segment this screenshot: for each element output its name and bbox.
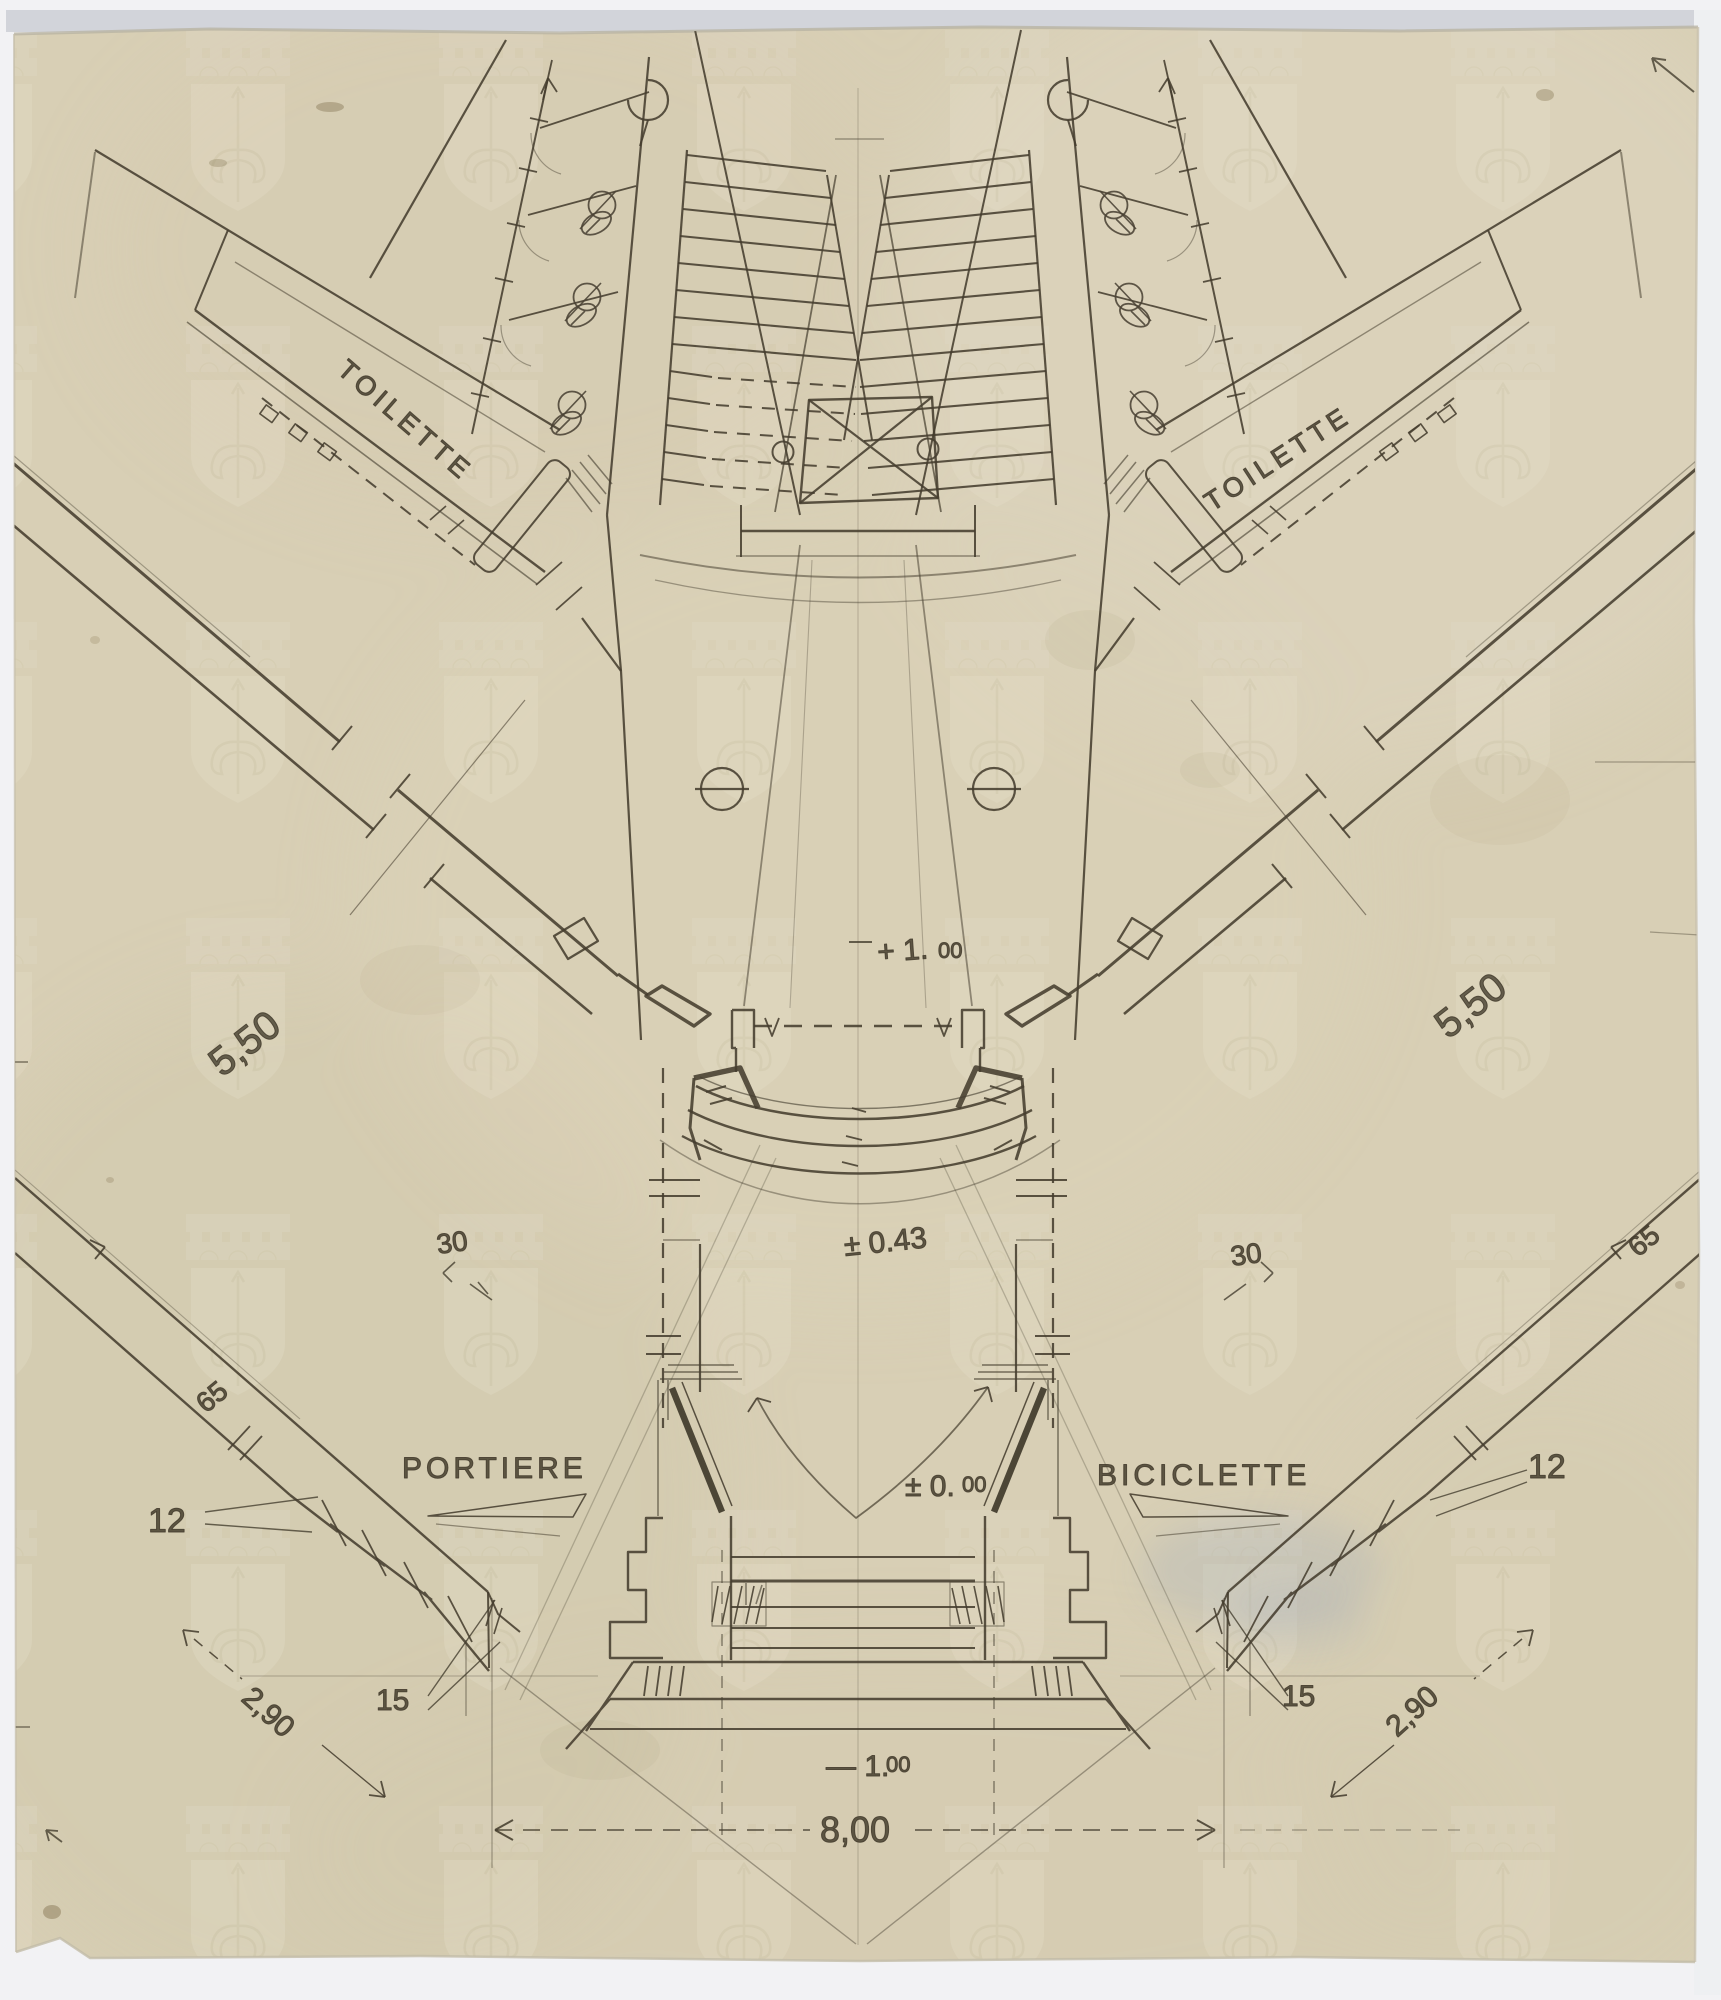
svg-text:00: 00 [962,1472,986,1497]
svg-text:12: 12 [148,1502,186,1540]
svg-text:00: 00 [938,938,962,963]
svg-text:15: 15 [1282,1680,1315,1713]
svg-text:± 0.: ± 0. [905,1470,955,1503]
svg-text:PORTIERE: PORTIERE [402,1452,587,1485]
svg-text:+ 1.: + 1. [876,933,929,969]
svg-text:12: 12 [1528,1448,1566,1486]
svg-text:30: 30 [435,1225,470,1260]
svg-text:15: 15 [376,1684,409,1717]
svg-text:30: 30 [1229,1237,1264,1272]
svg-text:8,00: 8,00 [820,1809,890,1850]
svg-text:— 1.: — 1. [826,1750,889,1783]
svg-text:00: 00 [886,1752,910,1777]
svg-text:BICICLETTE: BICICLETTE [1097,1459,1310,1492]
